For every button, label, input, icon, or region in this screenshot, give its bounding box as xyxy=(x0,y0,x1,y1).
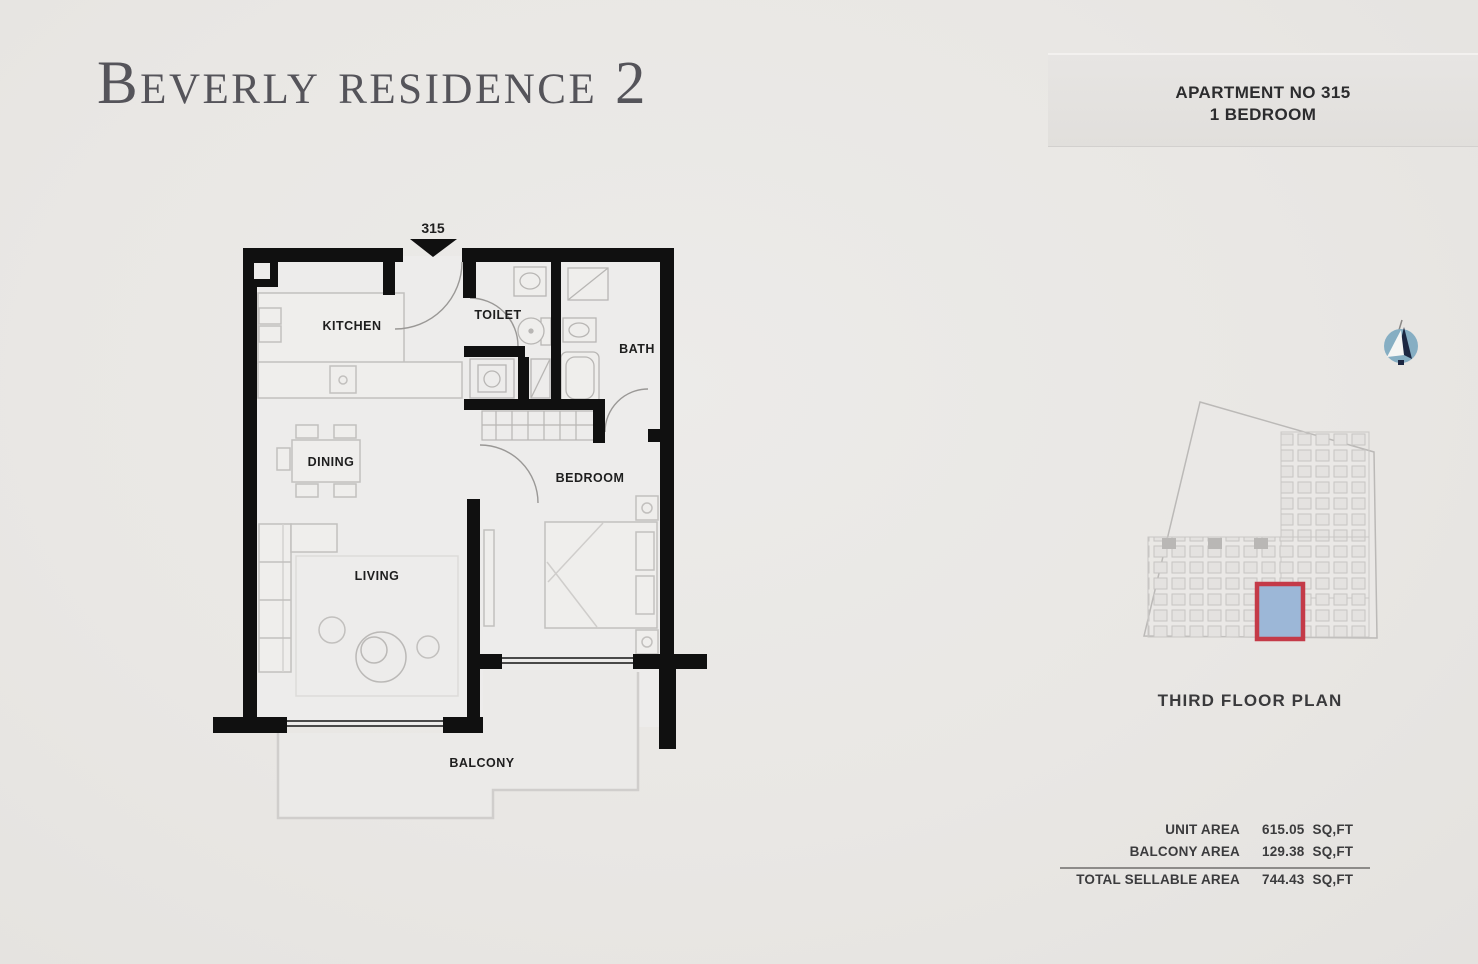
area-unit: SQ,FT xyxy=(1313,844,1354,859)
area-row-label: UNIT AREA xyxy=(1060,822,1240,837)
area-value: 129.38 xyxy=(1262,844,1305,859)
area-row-label: TOTAL SELLABLE AREA xyxy=(1060,872,1240,887)
area-row-label: BALCONY AREA xyxy=(1060,844,1240,859)
corner-column-core xyxy=(254,263,270,279)
unit-number-label: 315 xyxy=(421,220,445,236)
area-row-value: 615.05SQ,FT xyxy=(1240,822,1370,837)
area-unit: SQ,FT xyxy=(1313,822,1354,837)
developer-logo-icon xyxy=(1384,320,1418,365)
entry-arrow-icon xyxy=(410,239,457,257)
area-table: UNIT AREA 615.05SQ,FT BALCONY AREA 129.3… xyxy=(1060,822,1370,894)
area-value: 744.43 xyxy=(1262,872,1305,887)
site-unit-shaded-3 xyxy=(1254,538,1268,549)
dining-label: DINING xyxy=(308,455,355,469)
bedroom-label: BEDROOM xyxy=(556,471,625,485)
area-row-value: 129.38SQ,FT xyxy=(1240,844,1370,859)
site-unit-shaded-1 xyxy=(1162,538,1176,549)
apartment-plan: 315 KITCHEN TOILET BATH DINING BEDROOM L… xyxy=(213,220,707,818)
bath-label: BATH xyxy=(619,342,655,356)
area-unit: SQ,FT xyxy=(1313,872,1354,887)
kitchen-label: KITCHEN xyxy=(322,319,381,333)
table-divider xyxy=(1060,867,1370,869)
floor-plan-caption: THIRD FLOOR PLAN xyxy=(1148,691,1352,711)
area-row-total: TOTAL SELLABLE AREA 744.43SQ,FT xyxy=(1060,872,1370,894)
site-plan-minimap xyxy=(1144,402,1377,639)
highlighted-unit-marker xyxy=(1257,584,1303,639)
living-label: LIVING xyxy=(355,569,400,583)
toilet-label: TOILET xyxy=(474,308,521,322)
balcony-label: BALCONY xyxy=(449,756,514,770)
floor-plan-canvas: 315 KITCHEN TOILET BATH DINING BEDROOM L… xyxy=(0,0,1478,964)
area-row: BALCONY AREA 129.38SQ,FT xyxy=(1060,844,1370,866)
area-row: UNIT AREA 615.05SQ,FT xyxy=(1060,822,1370,844)
area-row-value: 744.43SQ,FT xyxy=(1240,872,1370,887)
brochure-page: Beverly residence 2 APARTMENT NO 315 1 B… xyxy=(0,0,1478,964)
site-unit-shaded-2 xyxy=(1208,538,1222,549)
area-value: 615.05 xyxy=(1262,822,1305,837)
